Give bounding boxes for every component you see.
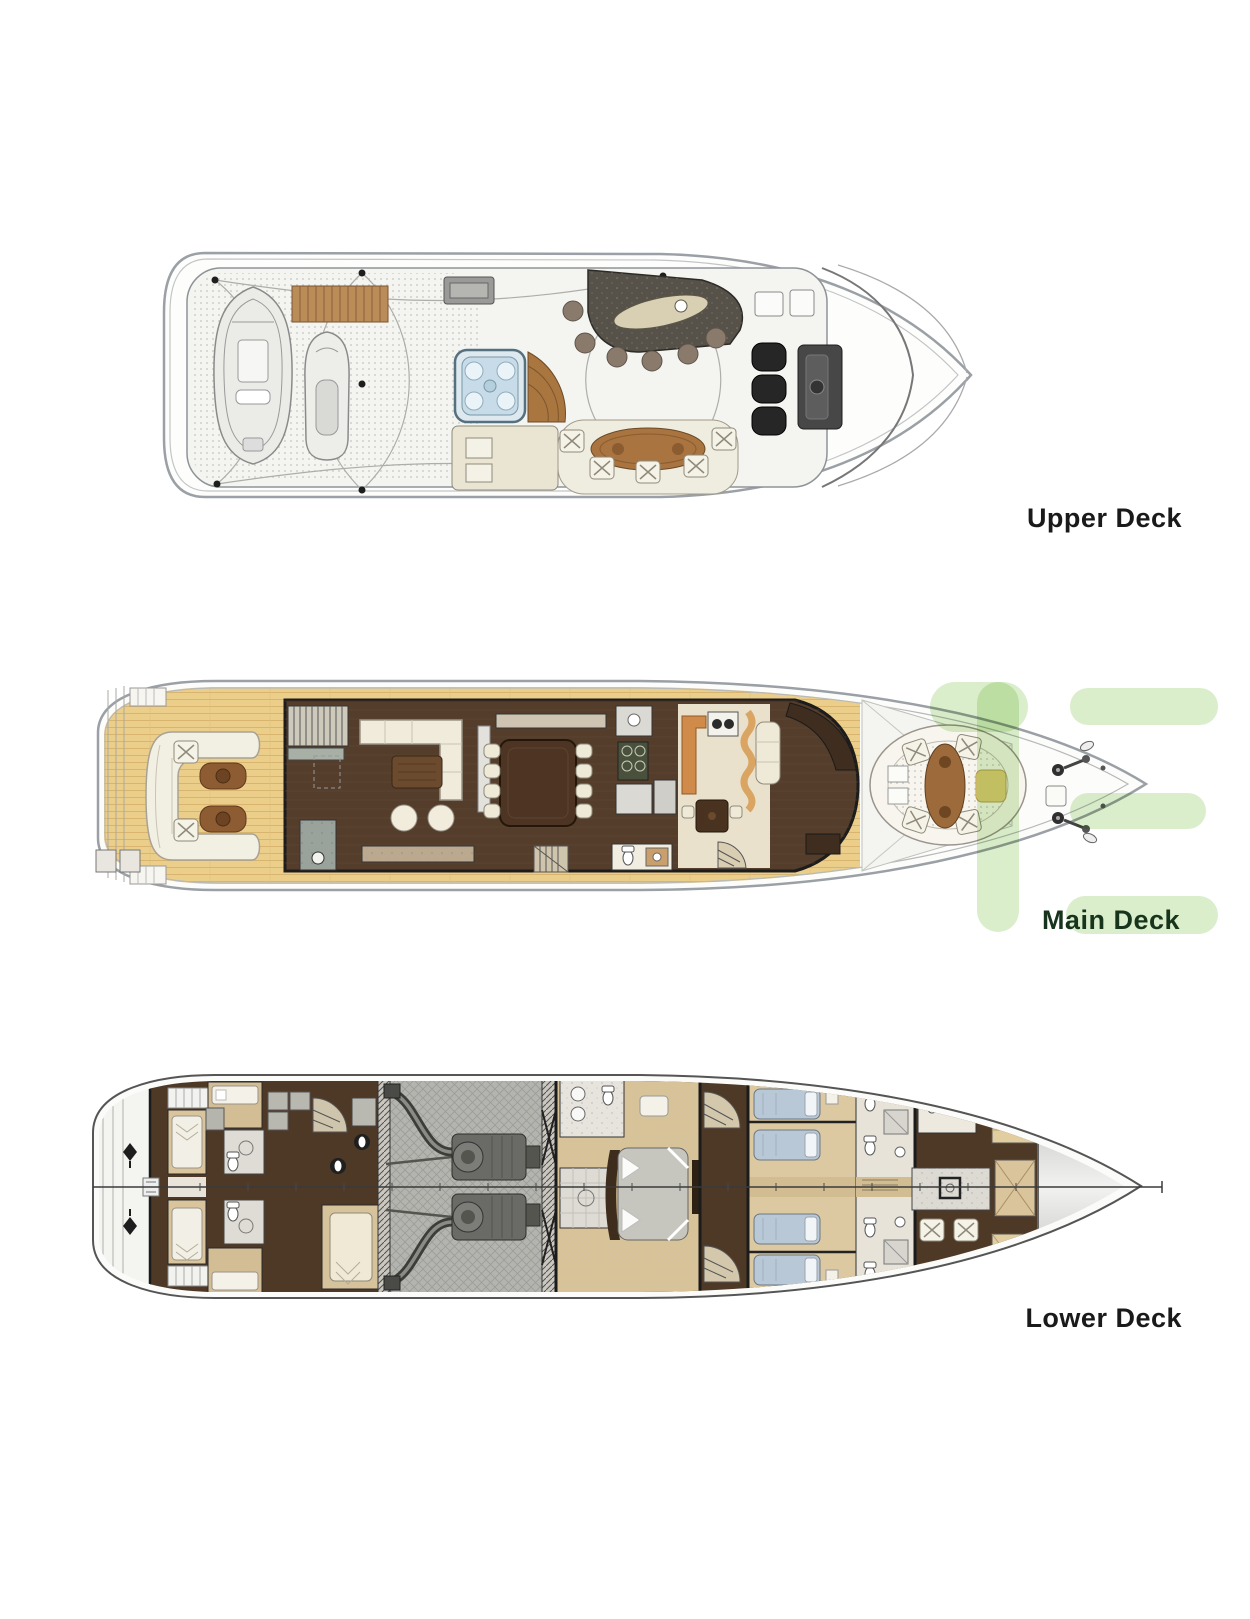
upper-deck-label: Upper Deck [1027,503,1182,534]
jet-ski-icon [305,332,349,460]
guest-bed-icon [754,1089,820,1119]
jacuzzi-icon [455,350,525,422]
main-deck-label: Main Deck [1042,905,1180,936]
yacht-deck-plans-drawing [0,0,1250,1619]
armchair-icon [428,805,454,831]
roof-hatch-icon [790,290,814,316]
roof-hatch-icon [755,292,783,316]
gangway-icon [292,286,388,322]
lower-deck-label: Lower Deck [1025,1303,1182,1334]
deck-plan-page: Upper Deck Main Deck Lower Deck [0,0,1250,1619]
master-cabin [556,1077,700,1299]
helm-console-icon [798,345,842,429]
armchair-icon [391,805,417,831]
tender-icon [214,287,292,464]
bow-locker [1038,1077,1168,1299]
watermark-shape [977,682,1019,932]
crane-icon [444,277,494,304]
dining-table-icon [500,740,576,826]
flybridge-dining-icon [558,420,738,494]
aft-stool-icon [174,741,198,763]
watermark-shape [1070,793,1206,829]
lower-deck-plan [93,1075,1168,1299]
coffee-table-icon [392,756,442,788]
aft-stool-icon [174,819,198,841]
guest-cabins [748,1077,915,1299]
upper-deck-plan [164,253,971,497]
helm-chairs-icon [752,343,786,435]
day-head-icon [612,844,672,870]
stairs-icon [288,706,348,746]
guest-bed-icon [754,1255,820,1285]
watermark-shape [1070,688,1218,725]
helm-seat-icon [756,722,780,784]
stairs-icon [534,846,568,872]
deck-cabinet-icon [452,426,558,490]
guest-bed-icon [754,1130,820,1160]
captain-cabin-icon [322,1205,378,1289]
guest-bed-icon [754,1214,820,1244]
sideboard-icon [496,714,606,728]
